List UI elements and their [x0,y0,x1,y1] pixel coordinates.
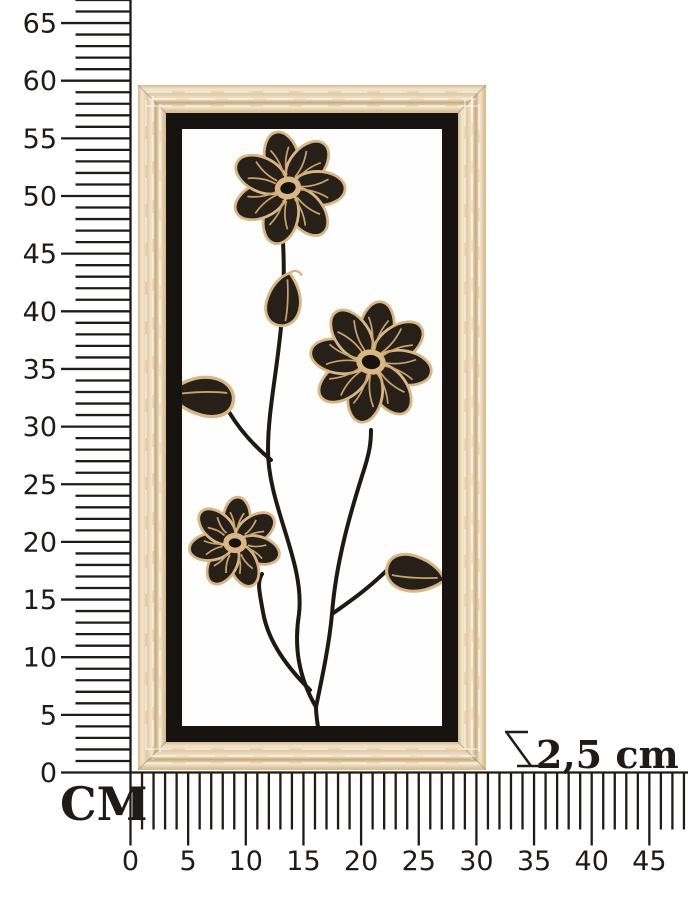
flower-center [226,535,245,551]
depth-annotation-label: 2,5 cm [536,732,679,777]
horizontal-ruler-label: 5 [180,846,197,877]
vertical-ruler-label: 45 [23,239,57,270]
depth-annotation: 2,5 cm [505,732,679,777]
vertical-ruler-label: 35 [23,354,57,385]
vertical-ruler-label: 10 [23,643,57,674]
vertical-ruler-label: 50 [23,182,57,213]
vertical-ruler-label: 55 [23,124,57,155]
vertical-ruler-label: 30 [23,412,57,443]
horizontal-ruler-label: 20 [344,846,378,877]
depth-symbol [507,733,531,766]
horizontal-ruler-label: 0 [122,846,139,877]
unit-label: CM [60,777,148,831]
vertical-ruler-label: 15 [23,585,57,616]
horizontal-ruler-label: 45 [632,846,666,877]
vertical-ruler-label: 40 [23,297,57,328]
horizontal-ruler-label: 35 [517,846,551,877]
vertical-ruler-label: 5 [40,700,57,731]
horizontal-ruler-label: 30 [459,846,493,877]
horizontal-ruler-label: 10 [229,846,263,877]
horizontal-ruler-label: 25 [402,846,436,877]
flower-center [357,350,384,374]
vertical-ruler-label: 25 [23,470,57,501]
stem-trunk [316,707,318,727]
product-dimension-image: 6560555045403530252015105005101520253035… [0,0,688,900]
vertical-ruler-label: 20 [23,527,57,558]
horizontal-ruler-label: 40 [575,846,609,877]
vertical-ruler-label: 60 [23,66,57,97]
vertical-ruler-label: 65 [23,9,57,40]
horizontal-ruler-label: 15 [286,846,320,877]
frame-wood-left [138,85,166,770]
flower-center [276,177,300,198]
vertical-ruler-label: 0 [40,758,57,789]
dimension-diagram-canvas: 6560555045403530252015105005101520253035… [0,0,688,900]
